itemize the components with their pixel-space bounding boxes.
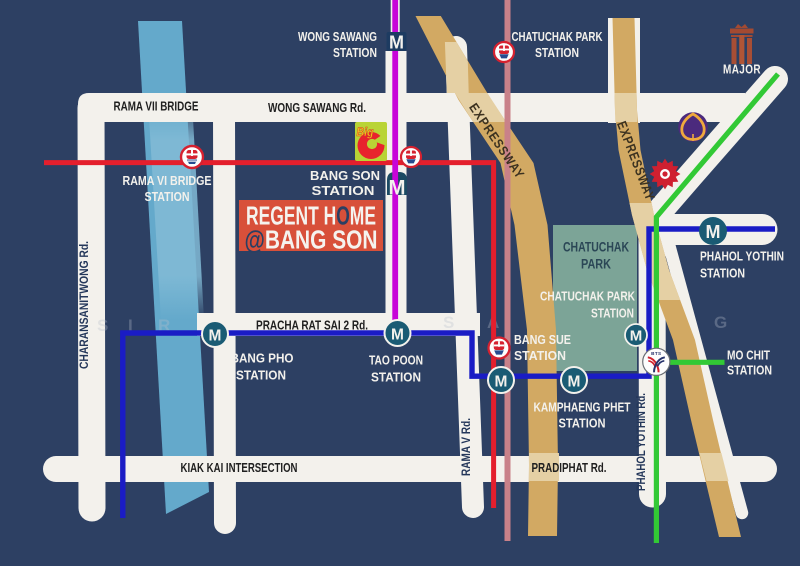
svg-text:STATION: STATION bbox=[727, 363, 772, 378]
svg-text:BANG PHO: BANG PHO bbox=[231, 351, 294, 366]
svg-text:M: M bbox=[630, 328, 643, 345]
svg-text:BTS: BTS bbox=[651, 351, 661, 356]
svg-text:STATION: STATION bbox=[333, 45, 377, 60]
svg-text:BANG SUE: BANG SUE bbox=[514, 332, 571, 347]
svg-text:M: M bbox=[389, 177, 406, 200]
svg-text:PARK: PARK bbox=[581, 256, 611, 271]
svg-text:RAMA VI BRIDGE: RAMA VI BRIDGE bbox=[123, 173, 212, 188]
svg-text:M: M bbox=[391, 327, 404, 344]
svg-text:WONG SAWANG: WONG SAWANG bbox=[298, 29, 377, 44]
svg-text:M: M bbox=[389, 33, 404, 53]
svg-text:S: S bbox=[443, 313, 454, 332]
svg-text:BANG SON: BANG SON bbox=[310, 168, 380, 183]
svg-text:Big: Big bbox=[357, 125, 375, 139]
svg-text:STATION: STATION bbox=[236, 368, 286, 383]
svg-text:CHARANSANITWONG Rd.: CHARANSANITWONG Rd. bbox=[77, 241, 91, 369]
svg-text:PRADIPHAT Rd.: PRADIPHAT Rd. bbox=[532, 460, 607, 475]
svg-text:STATION: STATION bbox=[145, 189, 190, 204]
svg-text:CHATUCHAK: CHATUCHAK bbox=[563, 239, 629, 254]
svg-text:STATION: STATION bbox=[371, 370, 421, 385]
svg-text:STATION: STATION bbox=[514, 348, 566, 363]
svg-text:G: G bbox=[714, 313, 727, 332]
svg-text:PHAHOL YOTHIN: PHAHOL YOTHIN bbox=[700, 249, 784, 264]
svg-text:M: M bbox=[706, 222, 721, 242]
svg-text:CHATUCHAK PARK: CHATUCHAK PARK bbox=[512, 29, 603, 44]
svg-text:STATION: STATION bbox=[312, 183, 375, 198]
svg-text:PRACHA RAT SAI 2 Rd.: PRACHA RAT SAI 2 Rd. bbox=[256, 319, 368, 333]
svg-text:STATION: STATION bbox=[700, 266, 745, 281]
svg-text:S: S bbox=[97, 316, 108, 335]
svg-text:PHAHOL YOTHIN Rd.: PHAHOL YOTHIN Rd. bbox=[634, 393, 648, 491]
svg-text:TAO POON: TAO POON bbox=[369, 353, 423, 368]
svg-text:KAMPHAENG PHET: KAMPHAENG PHET bbox=[534, 400, 631, 415]
svg-text:STATION: STATION bbox=[535, 45, 579, 60]
svg-text:CHATUCHAK PARK: CHATUCHAK PARK bbox=[540, 289, 635, 304]
svg-text:STATION: STATION bbox=[591, 306, 634, 321]
svg-text:STATION: STATION bbox=[559, 416, 606, 431]
svg-text:MAJOR: MAJOR bbox=[723, 63, 761, 77]
svg-text:RAMA V Rd.: RAMA V Rd. bbox=[459, 418, 473, 476]
svg-text:@BANG SON: @BANG SON bbox=[245, 225, 378, 255]
svg-text:M: M bbox=[209, 328, 222, 345]
svg-text:WONG SAWANG Rd.: WONG SAWANG Rd. bbox=[268, 100, 366, 115]
svg-text:RAMA VII BRIDGE: RAMA VII BRIDGE bbox=[114, 99, 199, 114]
svg-text:KIAK KAI INTERSECTION: KIAK KAI INTERSECTION bbox=[181, 460, 298, 475]
svg-text:M: M bbox=[568, 374, 581, 391]
svg-text:M: M bbox=[495, 374, 508, 391]
svg-text:MO CHIT: MO CHIT bbox=[727, 348, 770, 363]
